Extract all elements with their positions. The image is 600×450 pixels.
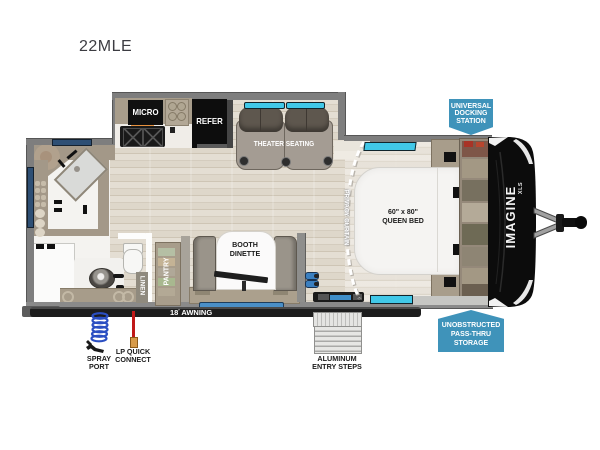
svg-text:XLS: XLS [518,182,524,194]
svg-text:IMAGINE: IMAGINE [503,186,518,249]
